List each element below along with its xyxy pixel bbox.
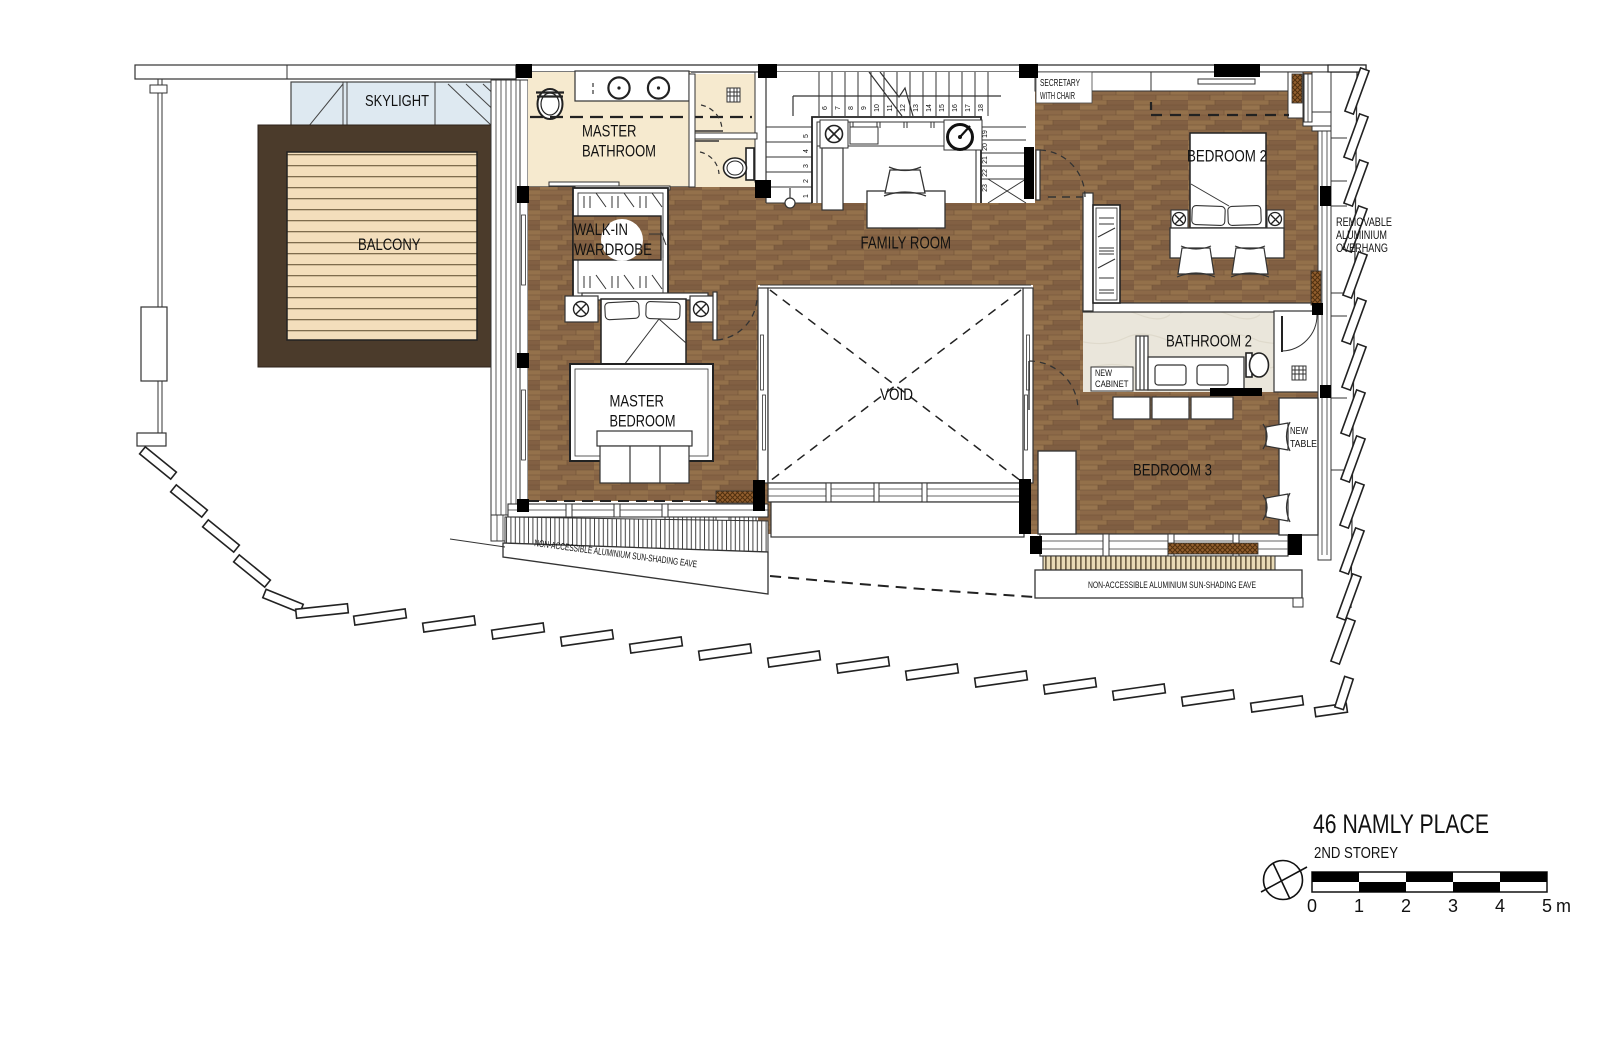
svg-text:19: 19 [982,130,989,138]
svg-text:13: 13 [913,104,920,112]
svg-text:23: 23 [982,184,989,192]
svg-text:WITH CHAIR: WITH CHAIR [1040,91,1075,102]
svg-text:BATHROOM 2: BATHROOM 2 [1166,333,1252,351]
svg-text:0: 0 [1307,896,1317,916]
svg-text:m: m [1556,896,1571,916]
svg-text:TABLE: TABLE [1290,439,1317,450]
svg-text:BEDROOM 3: BEDROOM 3 [1133,462,1212,480]
svg-text:WALK-IN: WALK-IN [574,221,628,239]
svg-text:4: 4 [1495,896,1505,916]
svg-text:10: 10 [874,104,881,112]
svg-text:2: 2 [803,179,810,183]
svg-text:3: 3 [1448,896,1458,916]
svg-text:12: 12 [900,104,907,112]
svg-text:NEW: NEW [1290,426,1308,437]
svg-text:46 NAMLY PLACE: 46 NAMLY PLACE [1313,809,1489,839]
svg-text:6: 6 [822,106,829,110]
svg-text:7: 7 [835,106,842,110]
svg-text:NON-ACCESSIBLE ALUMINIUM SUN-S: NON-ACCESSIBLE ALUMINIUM SUN-SHADING EAV… [1088,580,1256,591]
svg-text:1: 1 [1354,896,1364,916]
svg-text:2ND STOREY: 2ND STOREY [1314,845,1398,862]
svg-text:15: 15 [939,104,946,112]
svg-text:18: 18 [978,104,985,112]
svg-text:BATHROOM: BATHROOM [582,143,656,161]
svg-text:5: 5 [1542,896,1552,916]
svg-text:FAMILY ROOM: FAMILY ROOM [861,233,952,253]
svg-text:5: 5 [803,134,810,138]
svg-text:CABINET: CABINET [1095,379,1129,389]
svg-text:21: 21 [982,156,989,164]
svg-text:SKYLIGHT: SKYLIGHT [365,93,429,110]
svg-text:BEDROOM: BEDROOM [610,412,676,430]
svg-text:MASTER: MASTER [610,393,665,411]
svg-text:22: 22 [982,169,989,177]
svg-text:OVERHANG: OVERHANG [1336,241,1388,255]
svg-text:2: 2 [1401,896,1411,916]
svg-text:ALUMINIUM: ALUMINIUM [1336,228,1387,242]
svg-text:17: 17 [965,104,972,112]
svg-text:BEDROOM 2: BEDROOM 2 [1187,148,1267,166]
svg-text:3: 3 [803,164,810,168]
svg-text:BALCONY: BALCONY [358,236,421,254]
svg-text:VOID: VOID [880,386,913,404]
svg-text:NEW: NEW [1095,368,1112,378]
svg-text:4: 4 [803,149,810,153]
svg-text:16: 16 [952,104,959,112]
svg-text:20: 20 [982,143,989,151]
svg-text:1: 1 [803,194,810,198]
svg-text:8: 8 [848,106,855,110]
svg-text:SECRETARY: SECRETARY [1040,78,1080,89]
svg-text:MASTER: MASTER [582,123,637,141]
svg-text:11: 11 [887,104,894,111]
svg-text:WARDROBE: WARDROBE [574,241,652,259]
svg-text:REMOVABLE: REMOVABLE [1336,215,1392,229]
svg-text:9: 9 [861,106,868,110]
svg-text:14: 14 [926,104,933,112]
